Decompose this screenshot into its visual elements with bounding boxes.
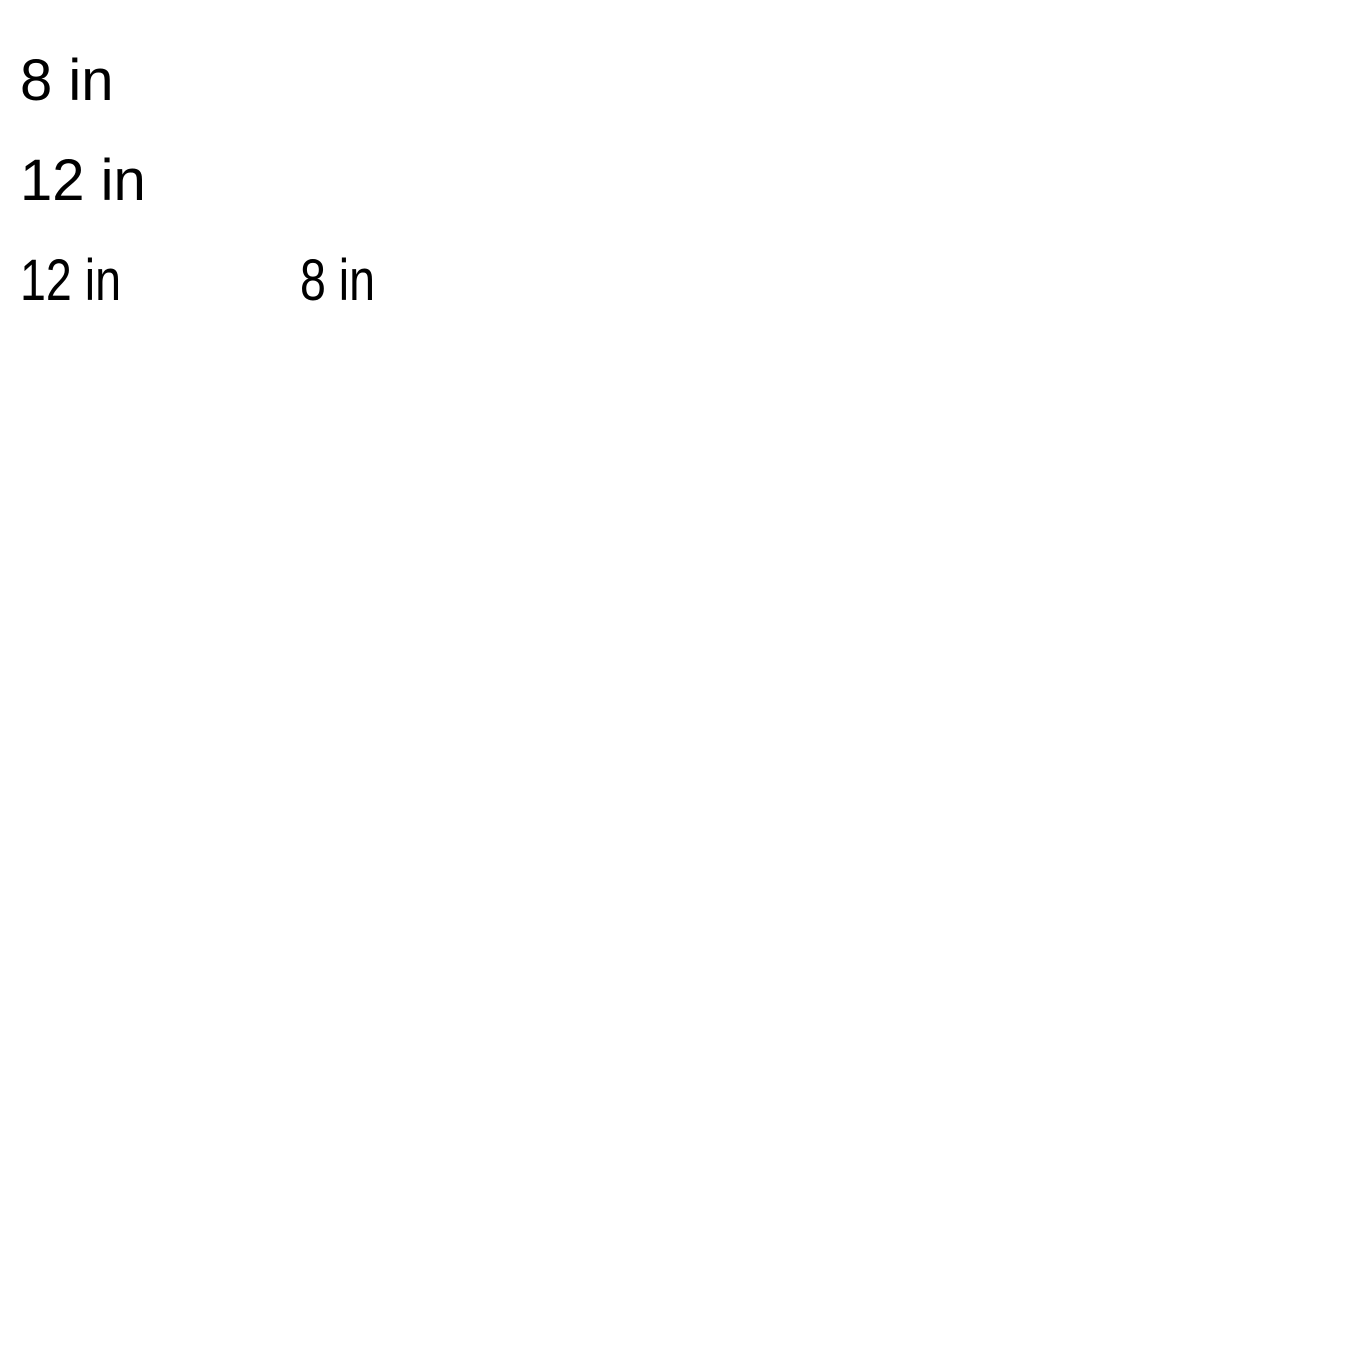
svg-text:12 in: 12 in xyxy=(20,248,121,313)
svg-text:12 in: 12 in xyxy=(20,148,146,213)
svg-text:8 in: 8 in xyxy=(20,48,114,113)
svg-text:8 in: 8 in xyxy=(300,248,375,313)
